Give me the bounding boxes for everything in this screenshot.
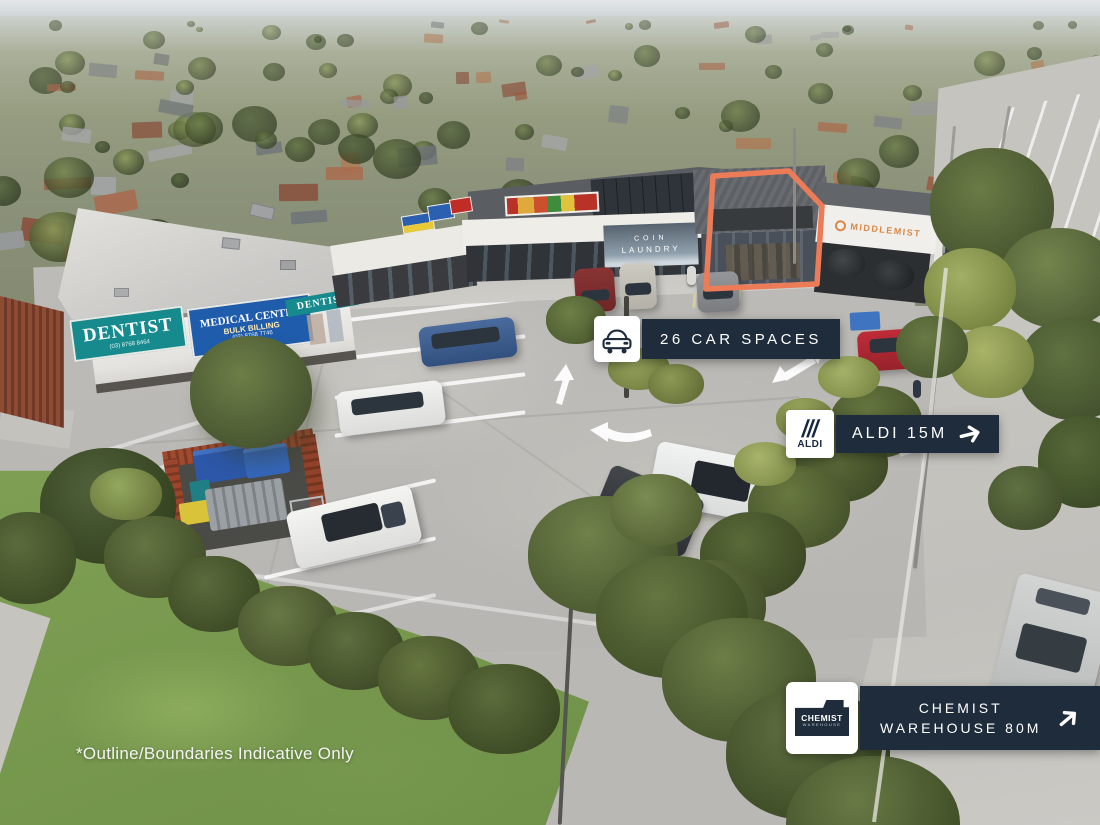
- suburb-roof: [62, 126, 92, 143]
- suburb-tree: [639, 20, 651, 30]
- suburb-tree: [419, 92, 433, 104]
- suburb-roof: [874, 115, 903, 129]
- suburb-tree: [285, 137, 316, 162]
- ac-unit: [221, 237, 240, 250]
- grass-tuft: [818, 356, 880, 398]
- suburb-roof: [818, 122, 847, 133]
- suburb-roof: [89, 63, 118, 78]
- suburb-roof: [736, 138, 771, 149]
- suburb-tree: [634, 45, 660, 66]
- suburb-tree: [608, 70, 622, 82]
- suburb-tree: [187, 21, 195, 27]
- chemist-label-box: CHEMIST WAREHOUSE 80M: [860, 686, 1100, 750]
- suburb-roof: [810, 34, 822, 41]
- suburb-tree: [255, 131, 277, 149]
- suburb-tree: [337, 34, 353, 47]
- suburb-tree: [188, 57, 216, 80]
- car-spaces-badge: 26 CAR SPACES: [594, 316, 840, 362]
- suburb-roof: [393, 96, 407, 110]
- suburb-roof: [475, 71, 491, 83]
- suburb-tree: [1033, 21, 1044, 30]
- aldi-badge: ALDI ALDI 15M: [786, 410, 999, 458]
- ac-unit: [280, 260, 296, 270]
- coin-laundry-window: COIN LAUNDRY: [603, 222, 698, 267]
- suburb-tree: [171, 173, 189, 187]
- suburb-tree: [675, 107, 690, 119]
- suburb-roof: [586, 19, 597, 24]
- pedestrian: [687, 266, 696, 285]
- chemist-warehouse-badge: CHEMIST WAREHOUSE CHEMIST WAREHOUSE 80M: [786, 682, 1100, 754]
- suburb-roof: [506, 157, 525, 171]
- tree: [988, 466, 1062, 530]
- suburb-tree: [49, 20, 62, 31]
- tree: [896, 316, 968, 378]
- suburb-tree: [536, 55, 562, 76]
- suburb-tree: [765, 65, 782, 79]
- outdoor-dining: [814, 242, 931, 303]
- suburb-tree: [974, 51, 1004, 76]
- suburb-tree: [721, 100, 760, 132]
- chemist-warehouse-logo: CHEMIST WAREHOUSE: [786, 682, 858, 754]
- suburb-tree: [113, 149, 144, 174]
- suburb-tree: [338, 134, 374, 164]
- suburb-roof: [514, 91, 527, 101]
- suburb-tree: [471, 22, 488, 36]
- suburb-tree: [185, 112, 224, 144]
- suburb-roof: [132, 121, 162, 138]
- unit-signband: [712, 206, 813, 231]
- suburb-roof: [714, 21, 730, 29]
- suburb-tree: [745, 26, 766, 43]
- suburb-roof: [423, 34, 442, 44]
- suburb-roof: [135, 71, 165, 81]
- suburb-tree: [625, 23, 634, 30]
- pedestrian: [913, 380, 921, 398]
- suburb-roof: [499, 20, 509, 24]
- ac-unit: [114, 288, 129, 297]
- aldi-logo-text: ALDI: [797, 440, 822, 450]
- suburb-roof: [821, 31, 839, 37]
- suburb-tree: [314, 36, 322, 43]
- suburb-roof: [456, 71, 469, 84]
- aldi-label-box: ALDI 15M: [836, 415, 999, 453]
- suburb-tree: [55, 51, 84, 75]
- suburb-tree: [143, 31, 165, 49]
- bush: [610, 474, 702, 546]
- suburb-tree: [1068, 21, 1078, 29]
- suburb-roof: [699, 63, 725, 71]
- middlemist-label: MIDDLEMIST: [850, 221, 922, 238]
- suburb-roof: [153, 52, 170, 65]
- suburb-tree: [816, 43, 833, 57]
- suburb-tree: [373, 139, 421, 178]
- bush: [448, 664, 560, 754]
- suburb-roof: [291, 210, 328, 225]
- shop-window: [326, 309, 344, 343]
- suburb-tree: [44, 157, 94, 198]
- suburb-roof: [279, 184, 318, 202]
- suburb-tree: [176, 80, 195, 95]
- chemist-label-line1: CHEMIST: [919, 698, 1003, 718]
- aldi-logo: ALDI: [786, 410, 834, 458]
- suburb-tree: [196, 27, 203, 33]
- suburb-roof: [541, 134, 568, 151]
- car-spaces-label: 26 CAR SPACES: [660, 331, 822, 348]
- aldi-label: ALDI 15M: [852, 425, 947, 443]
- tree: [190, 336, 312, 448]
- car-spaces-label-box: 26 CAR SPACES: [642, 319, 840, 359]
- suburb-tree: [262, 25, 280, 40]
- arrow-right-up-icon: [957, 421, 985, 446]
- suburb-roof: [326, 167, 363, 180]
- suburb-tree: [319, 63, 337, 77]
- suburb-tree: [308, 119, 340, 145]
- aerial-photo: DENTIST (03) 8768 8464 MEDICAL CENTRE BU…: [0, 0, 1100, 825]
- suburb-tree: [808, 83, 833, 103]
- suburb-roof: [905, 25, 913, 30]
- suburb-tree: [263, 63, 285, 81]
- disclaimer-text: *Outline/Boundaries Indicative Only: [76, 744, 354, 764]
- suburb-tree: [903, 85, 922, 101]
- car: [696, 271, 740, 313]
- grass-tuft: [648, 364, 704, 404]
- suburb-tree: [437, 121, 470, 148]
- arrow-up-right-icon: [1053, 702, 1086, 734]
- suburb-roof: [341, 99, 369, 108]
- suburb-tree: [60, 81, 75, 93]
- suburb-tree: [843, 26, 851, 32]
- suburb-tree: [515, 124, 534, 139]
- middlemist-logo-icon: [834, 219, 846, 231]
- chemist-logo-line2: WAREHOUSE: [803, 723, 842, 728]
- suburb-roof: [430, 22, 443, 30]
- car-icon: [594, 316, 640, 362]
- timber-screen: [0, 296, 64, 428]
- tree: [1000, 228, 1100, 328]
- umbrella: [826, 247, 867, 279]
- suburb-roof: [608, 105, 629, 124]
- shop-window: [306, 313, 326, 345]
- coin-laundry-line2: LAUNDRY: [621, 243, 680, 257]
- chemist-logo-shape: CHEMIST WAREHOUSE: [795, 700, 849, 736]
- umbrella: [871, 258, 916, 292]
- suburb-tree: [95, 141, 111, 154]
- suburb-roof: [0, 230, 25, 251]
- grass-tuft: [90, 468, 162, 520]
- suburb-tree: [571, 67, 583, 77]
- suburb-tree: [879, 135, 919, 168]
- suburb-tree: [0, 176, 21, 206]
- chemist-label-line2: WAREHOUSE 80M: [880, 718, 1041, 738]
- light-pole: [793, 128, 796, 264]
- suburb-tree: [1027, 47, 1043, 60]
